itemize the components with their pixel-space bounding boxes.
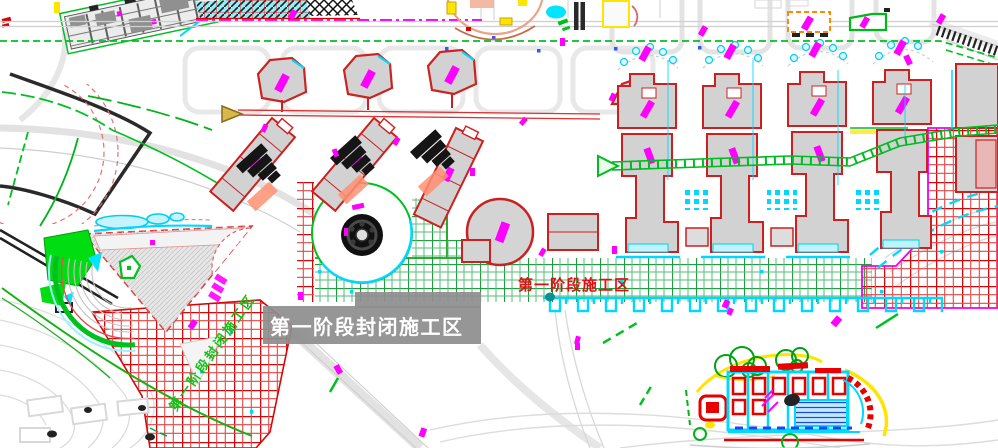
clubhouse-complex	[686, 347, 886, 448]
construction-facility-green	[850, 8, 890, 30]
site-plan-drawing: 第一阶段施工区 第一阶段封闭施工区 第一阶段封闭施工区	[0, 0, 998, 448]
site-plan-canvas[interactable]: 第一阶段施工区 第一阶段封闭施工区 第一阶段封闭施工区	[0, 0, 998, 448]
left-edge-marks	[2, 2, 60, 28]
construction-facility-orange	[788, 12, 830, 37]
phase1-closed-zone-label: 第一阶段封闭施工区	[263, 292, 481, 344]
phase1-work-zone-text: 第一阶段施工区	[518, 276, 630, 294]
dark-hatch-zone	[196, 0, 482, 20]
phase1-closed-zone-label-text: 第一阶段封闭施工区	[270, 315, 464, 339]
cyan-comb-structure	[543, 294, 943, 320]
residential-column-1	[612, 44, 712, 258]
round-building	[447, 199, 598, 265]
tilted-building-row	[210, 50, 485, 227]
residential-column-3	[786, 40, 882, 258]
residential-column-2	[701, 42, 797, 258]
